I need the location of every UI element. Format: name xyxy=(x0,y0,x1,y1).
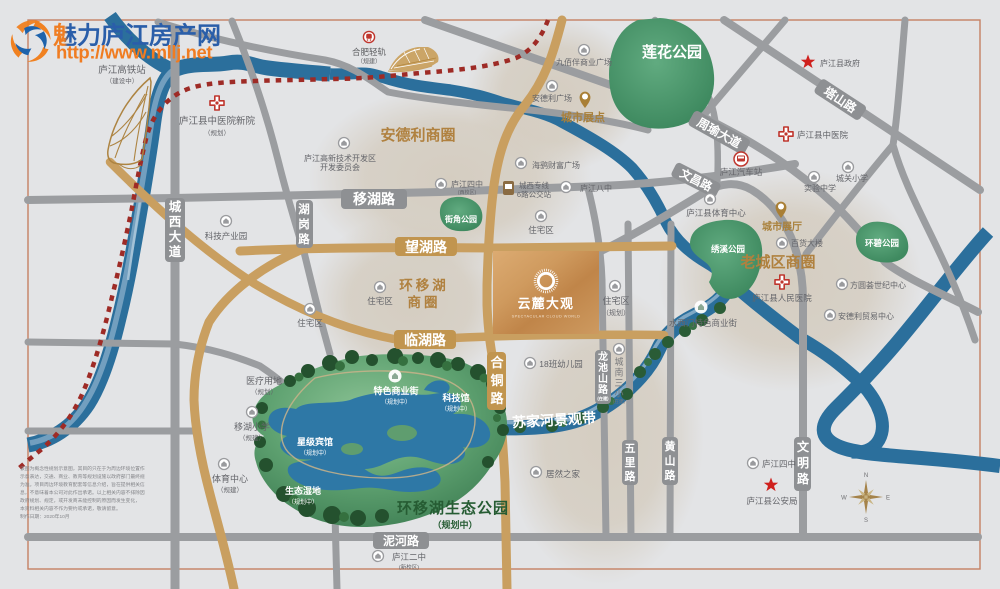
svg-text:http://www.mllj.net: http://www.mllj.net xyxy=(56,42,212,63)
svg-text:S: S xyxy=(864,518,868,524)
svg-text:湖岗路: 湖岗路 xyxy=(298,202,310,246)
svg-text:特色商业街: 特色商业街 xyxy=(373,385,418,396)
svg-text:合铜路: 合铜路 xyxy=(489,355,504,406)
svg-text:18班幼儿园: 18班幼儿园 xyxy=(539,359,582,369)
svg-text:制作日期：2020年10月: 制作日期：2020年10月 xyxy=(20,513,70,520)
svg-text:（规建）: （规建） xyxy=(239,433,265,442)
svg-text:黄山路: 黄山路 xyxy=(665,439,677,482)
svg-text:街角公园: 街角公园 xyxy=(444,214,477,224)
svg-text:示意表达，交通、商业、教育等规划设施以政府部门最终规: 示意表达，交通、商业、教育等规划设施以政府部门最终规 xyxy=(20,473,145,480)
svg-text:SPECTACULAR CLOUD WORLD: SPECTACULAR CLOUD WORLD xyxy=(512,315,581,319)
svg-text:政府规划、规定，或开发商未能控制的原因而发生变化，: 政府规划、规定，或开发商未能控制的原因而发生变化， xyxy=(20,497,140,504)
svg-text:为准。项目周边环境教育配套等信息介绍，旨在提供相关信: 为准。项目周边环境教育配套等信息介绍，旨在提供相关信 xyxy=(20,481,145,488)
svg-text:体育中心: 体育中心 xyxy=(212,473,248,484)
svg-text:庐江四中: 庐江四中 xyxy=(451,179,483,189)
svg-text:科技产业园: 科技产业园 xyxy=(205,231,248,241)
svg-text:城市展厅: 城市展厅 xyxy=(762,220,802,233)
svg-text:环移湖: 环移湖 xyxy=(399,277,449,293)
svg-text:望湖路: 望湖路 xyxy=(405,239,448,255)
svg-text:云麓大观: 云麓大观 xyxy=(518,296,575,311)
svg-text:百货大楼: 百货大楼 xyxy=(791,238,823,248)
svg-text:N: N xyxy=(864,473,868,479)
svg-text:城市展点: 城市展点 xyxy=(561,110,605,124)
svg-text:星级宾馆: 星级宾馆 xyxy=(297,436,333,447)
svg-text:水西门特色商业街: 水西门特色商业街 xyxy=(669,318,738,328)
svg-text:城西专线: 城西专线 xyxy=(519,180,549,190)
svg-text:庐江汽车站: 庐江汽车站 xyxy=(720,167,763,177)
svg-text:住宅区: 住宅区 xyxy=(367,296,393,306)
svg-text:庐江高新技术开发区: 庐江高新技术开发区 xyxy=(304,153,376,163)
svg-text:环移湖生态公园: 环移湖生态公园 xyxy=(397,499,509,517)
svg-text:（规划）: （规划） xyxy=(602,308,630,317)
svg-text:环碧公园: 环碧公园 xyxy=(865,238,899,248)
svg-text:移湖小学: 移湖小学 xyxy=(234,421,270,432)
svg-text:6路公交站: 6路公交站 xyxy=(517,189,552,199)
svg-text:商圈: 商圈 xyxy=(408,294,441,310)
svg-text:实验中学: 实验中学 xyxy=(804,183,836,193)
svg-text:移湖路: 移湖路 xyxy=(353,191,396,207)
svg-text:息，不意味着本公司对此作出承诺。以上相关内容不排除因: 息，不意味着本公司对此作出承诺。以上相关内容不排除因 xyxy=(20,489,145,496)
svg-text:居然之家: 居然之家 xyxy=(546,469,581,479)
svg-text:五里路: 五里路 xyxy=(625,442,637,483)
svg-text:安德利商圈: 安德利商圈 xyxy=(380,126,455,144)
svg-text:九佰伴商业广场: 九佰伴商业广场 xyxy=(556,57,612,67)
svg-text:海鹞财富广场: 海鹞财富广场 xyxy=(532,160,580,170)
svg-text:（规划）: （规划） xyxy=(251,387,277,396)
svg-text:文明路: 文明路 xyxy=(797,439,810,486)
svg-text:庐江四中: 庐江四中 xyxy=(762,459,796,469)
svg-text:住宅区: 住宅区 xyxy=(528,225,554,235)
svg-text:(新校区): (新校区) xyxy=(399,563,419,571)
svg-text:临湖路: 临湖路 xyxy=(404,332,447,348)
svg-text:安德利广场: 安德利广场 xyxy=(532,93,572,103)
svg-text:(西校区): (西校区) xyxy=(458,189,477,196)
svg-text:庐江八中: 庐江八中 xyxy=(580,183,612,193)
svg-text:城南三小: 城南三小 xyxy=(614,357,623,399)
svg-text:E: E xyxy=(886,496,890,502)
svg-text:合肥轻轨: 合肥轻轨 xyxy=(352,47,387,57)
svg-text:（规划）: （规划） xyxy=(204,128,230,137)
svg-text:城关小学: 城关小学 xyxy=(836,173,868,183)
svg-text:医疗用地: 医疗用地 xyxy=(246,375,282,386)
svg-text:庐江县体育中心: 庐江县体育中心 xyxy=(686,208,746,218)
svg-text:（规建）: （规建） xyxy=(217,485,243,494)
svg-text:（建设中）: （建设中） xyxy=(106,76,139,85)
svg-text:住宅区: 住宅区 xyxy=(297,318,323,328)
svg-text:庐江高铁站: 庐江高铁站 xyxy=(98,64,146,76)
svg-text:（规划中）: （规划中） xyxy=(288,498,318,506)
svg-text:龙池山路: 龙池山路 xyxy=(597,350,609,396)
svg-text:绣溪公园: 绣溪公园 xyxy=(710,244,745,254)
svg-text:庐江二中: 庐江二中 xyxy=(392,552,426,562)
svg-text:安德利贸易中心: 安德利贸易中心 xyxy=(838,311,894,321)
svg-text:住宅区: 住宅区 xyxy=(602,295,629,306)
svg-text:老城区商圈: 老城区商圈 xyxy=(739,253,815,271)
svg-text:文昌路: 文昌路 xyxy=(677,166,715,194)
svg-text:（规划中）: （规划中） xyxy=(300,449,330,457)
svg-text:(在建): (在建) xyxy=(613,398,625,405)
svg-text:生态湿地: 生态湿地 xyxy=(285,485,321,496)
svg-text:方圆荟世纪中心: 方圆荟世纪中心 xyxy=(850,280,906,290)
svg-text:泥河路: 泥河路 xyxy=(383,533,420,548)
svg-text:开发委员会: 开发委员会 xyxy=(320,162,360,172)
svg-text:庐江县人民医院: 庐江县人民医院 xyxy=(752,293,812,303)
svg-text:庐江县公安局: 庐江县公安局 xyxy=(746,496,797,506)
svg-text:莲花公园: 莲花公园 xyxy=(642,43,702,61)
svg-text:W: W xyxy=(841,496,847,502)
svg-text:庐江县中医院新院: 庐江县中医院新院 xyxy=(179,115,256,127)
svg-text:（规建）: （规建） xyxy=(357,58,381,66)
svg-text:（规划中）: （规划中） xyxy=(381,398,411,406)
svg-text:该图为概念性规划示意图，其目的只在于为周边环境位置作: 该图为概念性规划示意图，其目的只在于为周边环境位置作 xyxy=(20,465,145,472)
svg-text:庐江县政府: 庐江县政府 xyxy=(820,58,860,68)
svg-text:（规划中）: （规划中） xyxy=(441,405,471,413)
svg-text:庐江县中医院: 庐江县中医院 xyxy=(797,130,849,140)
svg-text:（规划中）: （规划中） xyxy=(432,519,477,530)
svg-text:科技馆: 科技馆 xyxy=(442,392,469,403)
svg-text:(在建): (在建) xyxy=(597,395,609,402)
svg-text:本资料相关内容不作为要约或承诺，敬请留意。: 本资料相关内容不作为要约或承诺，敬请留意。 xyxy=(20,505,121,512)
